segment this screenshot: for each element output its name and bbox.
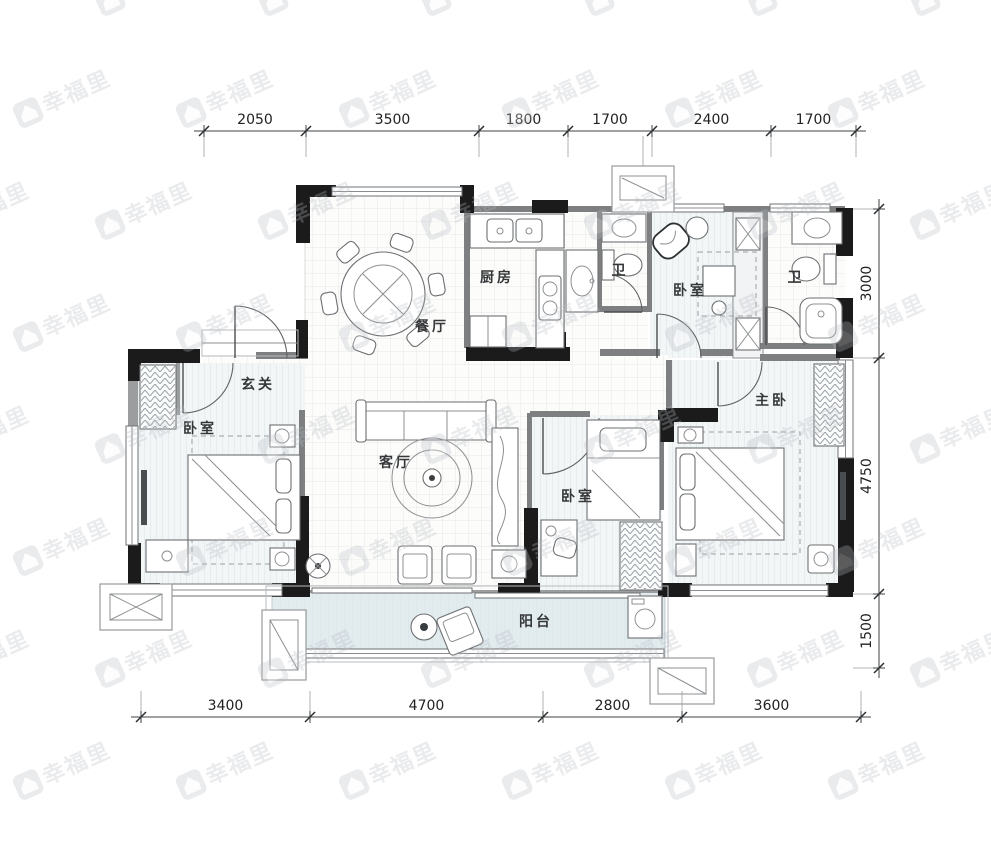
watermark-text: 幸福里 <box>39 65 115 118</box>
watermark: 幸福里 <box>745 625 849 691</box>
watermark-text: 幸福里 <box>121 177 197 230</box>
watermark: 幸福里 <box>337 737 441 803</box>
bath1-sink <box>602 214 646 242</box>
room-label-bedroom-north: 卧室 <box>673 282 707 299</box>
watermark-text: 幸福里 <box>202 65 278 118</box>
watermark-text: 幸福里 <box>936 401 991 454</box>
room-label-living-room: 客厅 <box>378 454 413 471</box>
watermark-text: 幸福里 <box>365 65 441 118</box>
room-label-bathroom-2: 卫 <box>788 270 805 286</box>
house-icon <box>344 102 365 123</box>
watermark-text: 幸福里 <box>39 289 115 342</box>
hall-floor-2 <box>600 312 648 355</box>
house-icon <box>181 326 202 347</box>
ac-platform-top <box>612 136 674 212</box>
hall-floor <box>530 355 668 415</box>
watermark: 幸福里 <box>908 625 991 691</box>
floor-plan-drawing: 2050350018001700240017003400470028003600… <box>0 0 991 844</box>
watermark: 幸福里 <box>11 289 115 355</box>
house-icon <box>100 0 121 11</box>
ac-platform-left <box>100 584 172 630</box>
floorplan-page: 2050350018001700240017003400470028003600… <box>0 0 991 844</box>
tv-master <box>840 472 846 520</box>
watermark-text: 幸福里 <box>528 65 604 118</box>
house-icon <box>344 774 365 795</box>
house-icon <box>833 102 854 123</box>
watermark-text: 幸福里 <box>365 737 441 790</box>
house-icon <box>589 0 610 11</box>
watermark: 幸福里 <box>582 0 686 19</box>
corridor-vanity <box>566 250 598 312</box>
house-icon <box>507 774 528 795</box>
watermark: 幸福里 <box>174 737 278 803</box>
pillow-middle <box>600 428 646 451</box>
dimension-label: 1500 <box>859 613 875 649</box>
house-icon <box>18 102 39 123</box>
watermark: 幸福里 <box>174 289 278 355</box>
ac-platform-bottom-left <box>262 610 306 680</box>
watermark-text: 幸福里 <box>202 289 278 342</box>
dimension-label: 3600 <box>754 698 790 714</box>
house-icon <box>833 774 854 795</box>
house-icon <box>915 662 936 683</box>
bath2-toilet <box>824 254 836 284</box>
nightstand <box>270 425 295 447</box>
bench <box>676 544 696 576</box>
house-icon <box>752 0 773 11</box>
house-icon <box>181 102 202 123</box>
kitchen-stove <box>539 276 561 320</box>
watermark: 幸福里 <box>11 737 115 803</box>
watermark-text: 幸福里 <box>691 65 767 118</box>
house-icon <box>18 326 39 347</box>
watermark: 幸福里 <box>826 737 930 803</box>
watermark-text: 幸福里 <box>691 737 767 790</box>
watermark-text: 幸福里 <box>284 0 360 6</box>
watermark-text: 幸福里 <box>0 177 34 230</box>
watermark-text: 幸福里 <box>0 401 34 454</box>
house-icon <box>915 214 936 235</box>
watermark: 幸福里 <box>256 0 360 19</box>
house-icon <box>426 0 447 11</box>
room-label-bathroom-1: 卫 <box>612 263 629 279</box>
house-icon <box>915 0 936 11</box>
tv <box>141 470 147 525</box>
room-label-balcony: 阳台 <box>519 613 553 630</box>
room-label-dining-room: 餐厅 <box>414 318 449 335</box>
watermark: 幸福里 <box>0 401 34 467</box>
house-icon <box>426 662 447 683</box>
watermark-text: 幸福里 <box>773 625 849 678</box>
watermark-text: 幸福里 <box>121 625 197 678</box>
watermark-text: 幸福里 <box>936 177 991 230</box>
watermark: 幸福里 <box>93 0 197 19</box>
watermark: 幸福里 <box>908 401 991 467</box>
dimension-label: 4750 <box>859 458 875 494</box>
side-cabinet <box>492 550 526 578</box>
house-icon <box>263 214 284 235</box>
watermark: 幸福里 <box>0 625 34 691</box>
watermark: 幸福里 <box>419 0 523 19</box>
watermark: 幸福里 <box>745 0 849 19</box>
watermark: 幸福里 <box>93 177 197 243</box>
room-label-foyer: 玄关 <box>241 376 275 393</box>
dimension-label: 2050 <box>237 112 273 128</box>
watermark: 幸福里 <box>908 0 991 19</box>
dimension-label: 2400 <box>694 112 730 128</box>
watermark-text: 幸福里 <box>854 737 930 790</box>
dimension-label: 1800 <box>506 112 542 128</box>
house-icon <box>100 662 121 683</box>
house-icon <box>263 0 284 11</box>
dimension-label: 4700 <box>409 698 445 714</box>
dimension-label: 1700 <box>796 112 832 128</box>
house-icon <box>100 438 121 459</box>
room-label-kitchen: 厨房 <box>480 269 514 286</box>
watermark: 幸福里 <box>663 737 767 803</box>
watermark-text: 幸福里 <box>936 625 991 678</box>
watermark: 幸福里 <box>908 177 991 243</box>
house-icon <box>100 214 121 235</box>
room-label-bedroom-west: 卧室 <box>183 420 217 437</box>
dimension-label: 3500 <box>375 112 411 128</box>
house-icon <box>670 102 691 123</box>
dimension-label: 3000 <box>859 266 875 302</box>
watermark-text: 幸福里 <box>528 737 604 790</box>
watermark-text: 幸福里 <box>0 625 34 678</box>
dimension-label: 1700 <box>592 112 628 128</box>
dimension-label: 2800 <box>595 698 631 714</box>
kitchen-sink <box>487 219 513 242</box>
room-label-bedroom-middle: 卧室 <box>561 488 595 505</box>
pillow-master <box>680 454 695 490</box>
side-table <box>686 217 708 239</box>
watermark: 幸福里 <box>93 625 197 691</box>
watermark-text: 幸福里 <box>39 737 115 790</box>
entry-door <box>202 306 298 358</box>
room-label-master-bedroom: 主卧 <box>755 392 789 409</box>
house-icon <box>18 774 39 795</box>
watermark-text: 幸福里 <box>121 0 197 6</box>
house-icon <box>589 662 610 683</box>
watermark-text: 幸福里 <box>447 0 523 6</box>
watermark: 幸福里 <box>0 0 34 19</box>
dresser <box>146 540 188 572</box>
house-icon <box>181 774 202 795</box>
desk <box>703 266 735 296</box>
watermark: 幸福里 <box>11 65 115 131</box>
dimension-label: 3400 <box>208 698 244 714</box>
watermark-text: 幸福里 <box>610 0 686 6</box>
watermark: 幸福里 <box>11 513 115 579</box>
watermark-text: 幸福里 <box>854 65 930 118</box>
washing-machine <box>628 596 662 638</box>
watermark-text: 幸福里 <box>936 0 991 6</box>
tv-bench <box>492 428 518 546</box>
watermark: 幸福里 <box>500 737 604 803</box>
house-icon <box>18 550 39 571</box>
watermark-text: 幸福里 <box>773 0 849 6</box>
house-icon <box>752 662 773 683</box>
pillow <box>276 459 291 493</box>
bath2-sink <box>792 212 842 244</box>
watermark: 幸福里 <box>0 177 34 243</box>
watermark-text: 幸福里 <box>854 513 930 566</box>
house-icon <box>670 774 691 795</box>
house-icon <box>915 438 936 459</box>
watermark-text: 幸福里 <box>39 513 115 566</box>
watermark: 幸福里 <box>826 65 930 131</box>
stool <box>808 545 834 573</box>
sofa <box>362 402 490 440</box>
watermark-text: 幸福里 <box>0 0 34 6</box>
watermark-text: 幸福里 <box>202 737 278 790</box>
